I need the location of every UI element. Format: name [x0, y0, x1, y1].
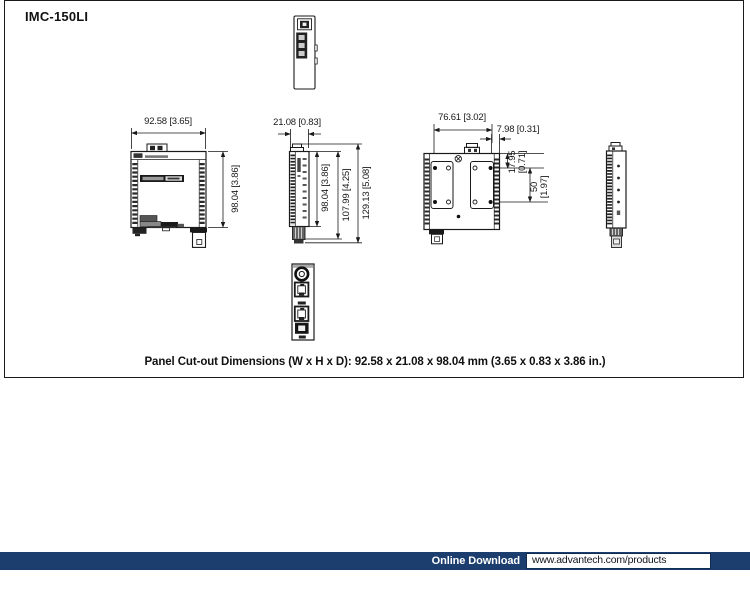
- download-url-box: www.advantech.com/products: [526, 553, 711, 569]
- download-url: www.advantech.com/products: [527, 554, 710, 567]
- dim-side-total-height: 129.13 [5.08]: [362, 167, 372, 220]
- front-label-bar: [140, 175, 184, 182]
- top-view: [294, 16, 317, 89]
- dim-rear-hole-span: 76.61 [3.02]: [438, 113, 486, 123]
- mechanical-drawings: [5, 1, 745, 377]
- dim-rear-top-offset: 17.95 [0.71]: [508, 151, 528, 174]
- footer-bar: Online Download www.advantech.com/produc…: [0, 552, 750, 570]
- dim-side-body-height: 98.04 [3.86]: [321, 164, 331, 212]
- dim-rear-hole-spacing: 50 [1.97]: [530, 176, 550, 199]
- front-view: [131, 128, 228, 247]
- dim-front-height: 98.04 [3.86]: [231, 165, 241, 213]
- dim-side-width: 21.08 [0.83]: [273, 118, 321, 128]
- right-side-view: [607, 143, 627, 248]
- datasheet-page: IMC-150LI: [0, 0, 750, 591]
- bottom-view: [292, 264, 314, 340]
- dim-front-width: 92.58 [3.65]: [144, 117, 192, 127]
- dim-side-mid-height: 107.99 [4.25]: [342, 169, 352, 222]
- online-download-label: Online Download: [380, 552, 520, 570]
- panel-cutout-caption: Panel Cut-out Dimensions (W x H x D): 92…: [5, 356, 745, 368]
- diagram-border: IMC-150LI: [4, 0, 744, 378]
- dim-rear-edge-offset: 7.98 [0.31]: [497, 125, 540, 135]
